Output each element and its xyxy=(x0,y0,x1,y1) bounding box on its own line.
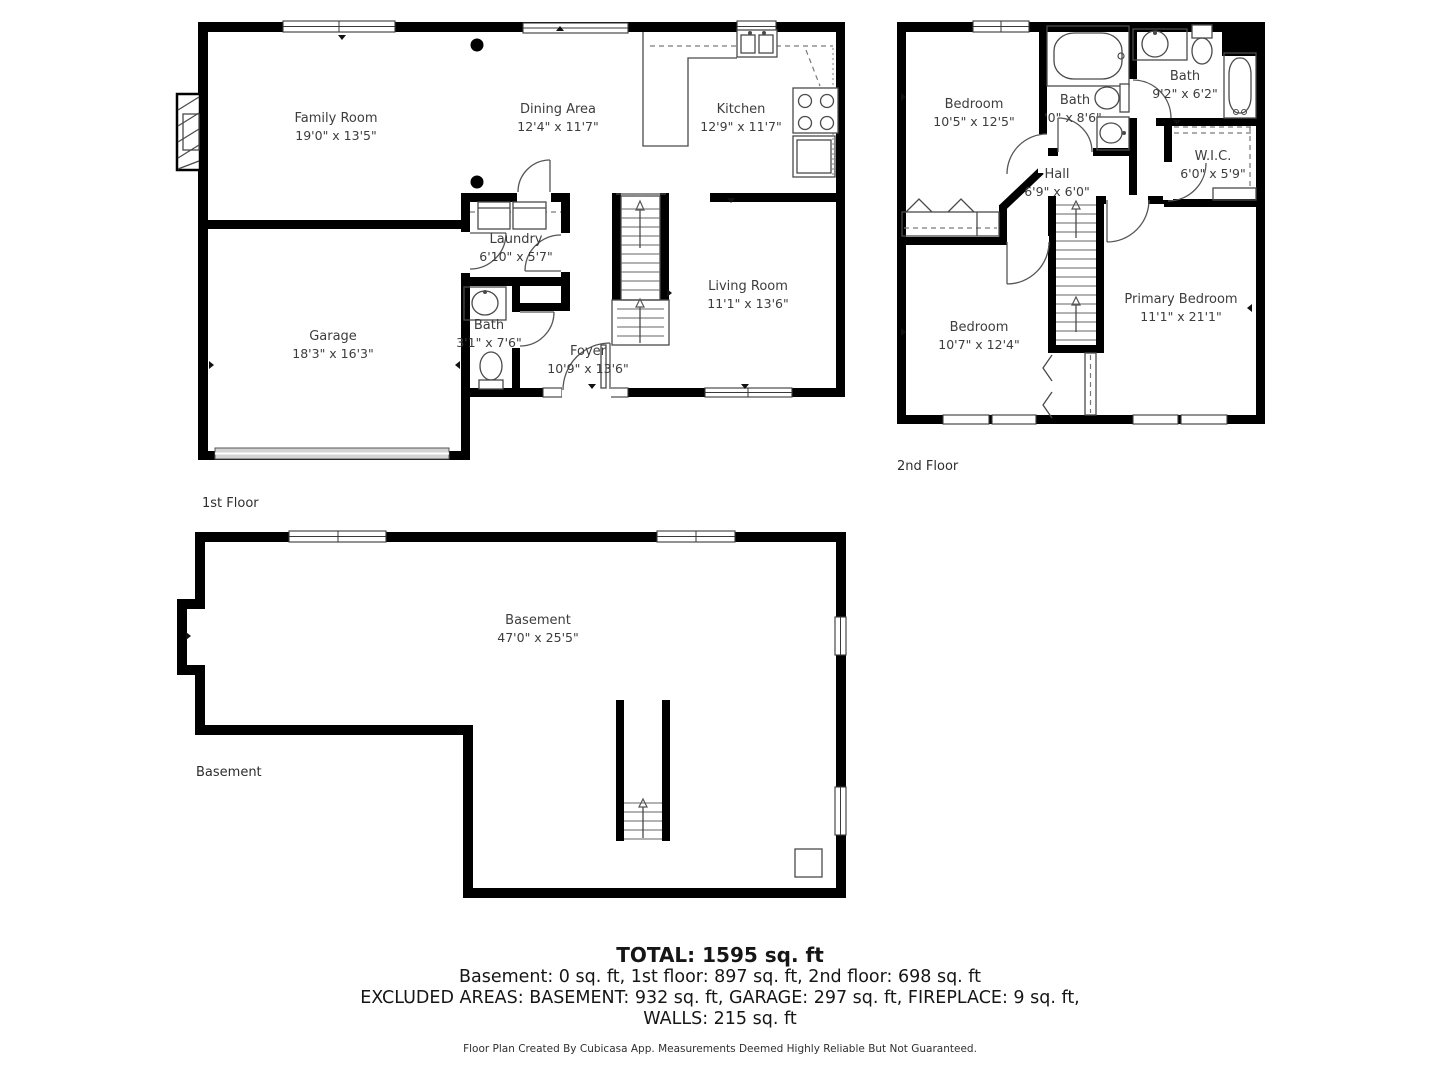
door-arc-dining-hall xyxy=(517,160,551,203)
dryer-icon xyxy=(513,202,546,229)
staircase-first-floor xyxy=(601,194,669,388)
column-dots xyxy=(471,39,484,189)
room-label-bedroom-bottom: Bedroom xyxy=(950,320,1009,335)
bifold-door-icon xyxy=(1043,392,1052,418)
closet-bedroom-bottom xyxy=(1043,353,1096,418)
closet-shelf xyxy=(1213,188,1256,200)
room-label-dining-area: Dining Area xyxy=(520,102,596,117)
total-area: TOTAL: 1595 sq. ft xyxy=(0,944,1440,967)
door-arc-primary-bedroom xyxy=(1106,195,1149,242)
toilet-icon xyxy=(480,352,502,380)
second-floor-labels: Bedroom 10'5" x 12'5" Bath '0" x 8'6" Ba… xyxy=(897,69,1246,474)
door-arc-bedroom-top xyxy=(1007,134,1048,174)
staircase-second-floor xyxy=(1056,201,1096,340)
disclaimer-text: Floor Plan Created By Cubicasa App. Meas… xyxy=(0,1043,1440,1055)
room-dims-family-room: 19'0" x 13'5" xyxy=(295,128,376,143)
room-label-kitchen: Kitchen xyxy=(717,102,766,117)
room-dims-foyer: 10'9" x 13'6" xyxy=(547,361,628,376)
room-dims-bedroom-bottom: 10'7" x 12'4" xyxy=(938,337,1019,352)
floor-label-basement: Basement xyxy=(196,765,262,780)
basement-windows xyxy=(289,531,846,835)
closet-bedroom-top xyxy=(902,199,999,236)
room-label-primary-bedroom: Primary Bedroom xyxy=(1124,292,1237,307)
room-label-living-room: Living Room xyxy=(708,279,788,294)
room-label-foyer: Foyer xyxy=(570,344,607,359)
floor-plan-sheet: Family Room 19'0" x 13'5" Dining Area 12… xyxy=(0,0,1440,1080)
room-label-family-room: Family Room xyxy=(295,111,378,126)
area-summary: TOTAL: 1595 sq. ft Basement: 0 sq. ft, 1… xyxy=(0,944,1440,1030)
floor-label-second: 2nd Floor xyxy=(897,459,959,474)
basement-labels: Basement 47'0" x 25'5" Basement xyxy=(196,613,579,780)
second-floor-plan: Bedroom 10'5" x 12'5" Bath '0" x 8'6" Ba… xyxy=(897,21,1265,474)
room-dims-bath-right: 9'2" x 6'2" xyxy=(1152,86,1218,101)
room-label-garage: Garage xyxy=(309,329,357,344)
room-label-basement: Basement xyxy=(505,613,571,628)
cabinet xyxy=(793,136,835,177)
bifold-door-icon xyxy=(1043,355,1052,381)
room-dims-garage: 18'3" x 16'3" xyxy=(292,346,373,361)
basement-marker xyxy=(186,632,191,640)
excluded-areas: EXCLUDED AREAS: BASEMENT: 932 sq. ft, GA… xyxy=(0,988,1440,1009)
door-arc-bedroom-bottom xyxy=(1007,236,1049,284)
staircase-basement xyxy=(616,700,670,841)
basement-plan: Basement 47'0" x 25'5" Basement xyxy=(182,531,846,893)
room-label-bath-middle: Bath xyxy=(1060,93,1090,108)
bifold-door-icon xyxy=(948,199,974,212)
room-label-bedroom-top: Bedroom xyxy=(945,97,1004,112)
room-dims-bedroom-top: 10'5" x 12'5" xyxy=(933,114,1014,129)
room-label-bath: Bath xyxy=(474,318,504,333)
room-dims-bath: 3'1" x 7'6" xyxy=(456,335,522,350)
sink-icon xyxy=(472,291,498,315)
room-dims-basement: 47'0" x 25'5" xyxy=(497,630,578,645)
bathtub-icon xyxy=(1047,26,1129,86)
fireplace xyxy=(177,94,200,170)
room-dims-kitchen: 12'9" x 11'7" xyxy=(700,119,781,134)
room-label-hall: Hall xyxy=(1045,167,1070,182)
toilet-icon xyxy=(1120,84,1129,112)
basement-walls xyxy=(182,537,841,893)
room-dims-hall: 6'9" x 6'0" xyxy=(1024,184,1090,199)
laundry-appliances xyxy=(470,202,561,229)
room-dims-wic: 6'0" x 5'9" xyxy=(1180,166,1246,181)
room-dims-dining-area: 12'4" x 11'7" xyxy=(517,119,598,134)
room-dims-bath-middle: '0" x 8'6" xyxy=(1044,110,1102,125)
floor-plan-drawing: Family Room 19'0" x 13'5" Dining Area 12… xyxy=(0,0,1440,1080)
room-label-wic: W.I.C. xyxy=(1195,149,1232,164)
first-floor-plan: Family Room 19'0" x 13'5" Dining Area 12… xyxy=(177,21,845,511)
toilet-icon xyxy=(1192,25,1212,38)
room-label-laundry: Laundry xyxy=(490,232,543,247)
room-dims-laundry: 6'10" x 5'7" xyxy=(479,249,552,264)
room-dims-living-room: 11'1" x 13'6" xyxy=(707,296,788,311)
utility-box xyxy=(795,849,822,877)
bath-middle-fixtures xyxy=(1047,26,1129,150)
floor-areas: Basement: 0 sq. ft, 1st floor: 897 sq. f… xyxy=(0,967,1440,988)
room-label-bath-right: Bath xyxy=(1170,69,1200,84)
garage-door xyxy=(215,448,449,459)
walls-area: WALLS: 215 sq. ft xyxy=(0,1009,1440,1030)
floor-label-first: 1st Floor xyxy=(202,496,259,511)
washer-icon xyxy=(478,202,510,229)
room-dims-primary-bedroom: 11'1" x 21'1" xyxy=(1140,309,1221,324)
bifold-door-icon xyxy=(906,199,932,212)
